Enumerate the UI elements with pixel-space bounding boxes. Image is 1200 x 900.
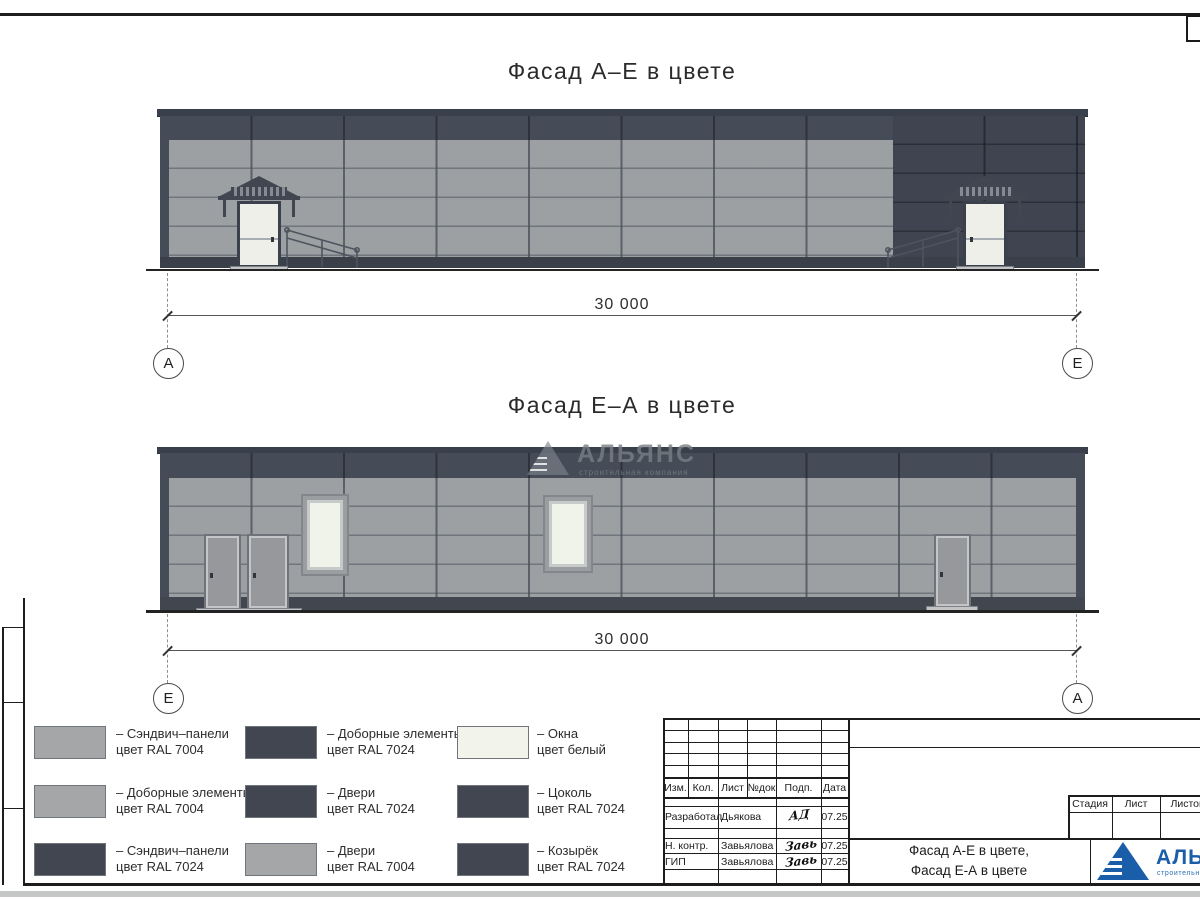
- canopy-bracket: [1018, 199, 1021, 217]
- watermark-tagline: строительная компания: [579, 468, 689, 477]
- titleblock-signature: АД: [789, 807, 810, 824]
- titleblock-header-list: Лист: [718, 782, 747, 794]
- legend-label: – Козырёкцвет RAL 7024: [537, 843, 625, 875]
- titleblock-line: [663, 828, 848, 829]
- facade2-window-2: [545, 497, 591, 571]
- titleblock-line: [1090, 838, 1091, 883]
- titleblock-date: 07.25: [821, 811, 848, 823]
- legend-label: – Доборные элементыцвет RAL 7024: [327, 726, 463, 758]
- legend-swatch: [245, 785, 317, 818]
- ramp-railing: [283, 220, 363, 270]
- door-handle: [970, 237, 973, 242]
- titleblock-doc-title-line2: Фасад Е-А в цвете: [848, 863, 1090, 878]
- legend-label: – Доборные элементыцвет RAL 7004: [116, 785, 252, 817]
- facade1-left-door: [237, 201, 281, 268]
- facade1-dimension-label: 30 000: [512, 296, 732, 314]
- dimension-line: [168, 315, 1077, 316]
- titleblock-line: [663, 806, 848, 807]
- facade1-right-door: [963, 201, 1007, 268]
- titleblock-line: [663, 853, 848, 854]
- titleblock-line: [848, 718, 850, 883]
- company-logo-tagline: строительная компания: [1157, 870, 1200, 877]
- titleblock-role: ГИП: [665, 856, 686, 868]
- facade2-door-1: [204, 534, 241, 610]
- canopy-slats: [231, 187, 287, 196]
- titleblock-line: [663, 869, 848, 870]
- legend-label: – Окнацвет белый: [537, 726, 606, 758]
- legend-label: – Дверицвет RAL 7024: [327, 785, 415, 817]
- canopy-slats: [957, 187, 1013, 196]
- titleblock-line: [848, 838, 1200, 840]
- titleblock-line: [663, 730, 848, 731]
- facade2-dimension-label: 30 000: [512, 631, 732, 649]
- watermark-company-name: АЛЬЯНС: [577, 440, 696, 469]
- titleblock-sheets-header: Листов: [1160, 798, 1200, 810]
- titleblock-date: 07.25: [821, 856, 848, 868]
- titleblock-header-izm: Изм.: [663, 782, 688, 794]
- frame-margin-divider: [2, 627, 24, 628]
- drawing-sheet: Фасад А–Е в цвете: [0, 0, 1200, 900]
- canopy-bracket: [223, 199, 226, 217]
- titleblock-line: [1068, 812, 1200, 813]
- facade2-title: Фасад Е–А в цвете: [422, 392, 822, 419]
- frame-top-line: [0, 13, 1200, 16]
- facade2-left-corner-trim: [160, 453, 169, 597]
- company-logo-icon: [1097, 842, 1149, 880]
- facade2-door-3: [934, 534, 971, 608]
- titleblock-line: [663, 797, 848, 799]
- titleblock-header-ndok: №док: [747, 782, 776, 794]
- titleblock-signature: Завь: [785, 852, 818, 870]
- canopy-bar: [218, 196, 300, 200]
- legend-swatch: [245, 843, 317, 876]
- titleblock-header-podp: Подп.: [776, 782, 821, 794]
- legend-label: – Сэндвич–панелицвет RAL 7004: [116, 726, 229, 758]
- legend-swatch: [457, 843, 529, 876]
- titleblock-header-data: Дата: [821, 782, 848, 794]
- titleblock-name: Дьякова: [721, 811, 761, 823]
- facade1-axis-right: Е: [1062, 348, 1093, 379]
- titleblock-line: [663, 742, 848, 743]
- canopy-bar: [944, 196, 1026, 200]
- titleblock-name: Завьялова: [721, 856, 773, 868]
- titleblock-date: 07.25: [821, 840, 848, 852]
- legend-label: – Дверицвет RAL 7004: [327, 843, 415, 875]
- legend-label: – Цокольцвет RAL 7024: [537, 785, 625, 817]
- facade1-title: Фасад А–Е в цвете: [422, 58, 822, 85]
- door-handle: [940, 572, 943, 577]
- legend-swatch: [34, 843, 106, 876]
- titleblock-stage-header: Стадия: [1068, 798, 1112, 810]
- titleblock-sheet-header: Лист: [1112, 798, 1160, 810]
- legend-label: – Сэндвич–панелицвет RAL 7024: [116, 843, 229, 875]
- ramp-railing: [882, 220, 962, 270]
- extension-line: [1076, 273, 1077, 348]
- facade1-ground-line: [146, 269, 1099, 272]
- titleblock-signature: Завь: [785, 836, 818, 854]
- titleblock-doc-title-line1: Фасад А-Е в цвете,: [848, 843, 1090, 858]
- titleblock-header-kol: Кол.: [688, 782, 718, 794]
- frame-corner-box: [1186, 15, 1200, 42]
- legend: – Сэндвич–панелицвет RAL 7004 – Доборные…: [0, 715, 660, 885]
- frame-margin-divider: [2, 702, 24, 703]
- facade2-ground-line: [146, 610, 1099, 613]
- titleblock-line: [848, 747, 1200, 748]
- legend-swatch: [457, 726, 529, 759]
- facade1-axis-left: А: [153, 348, 184, 379]
- watermark-logo-icon: [527, 441, 569, 475]
- door-handle: [210, 573, 213, 578]
- legend-swatch: [34, 726, 106, 759]
- titleblock-line: [663, 753, 848, 754]
- facade1-drawing: [160, 109, 1085, 271]
- legend-swatch: [457, 785, 529, 818]
- facade2-window-1: [303, 496, 347, 574]
- door-handle: [253, 573, 256, 578]
- titleblock-line: [663, 777, 848, 779]
- titleblock-name: Завьялова: [721, 840, 773, 852]
- door-handle: [271, 237, 274, 242]
- titleblock-line: [1068, 795, 1200, 797]
- facade2-axis-right: А: [1062, 683, 1093, 714]
- titleblock-role: Н. контр.: [665, 840, 708, 852]
- legend-swatch: [34, 785, 106, 818]
- company-watermark: АЛЬЯНС строительная компания: [527, 437, 717, 483]
- titleblock-line: [663, 718, 1200, 720]
- canopy-bracket: [949, 199, 952, 217]
- dimension-line: [168, 650, 1077, 651]
- canopy-bracket: [292, 199, 295, 217]
- facade2-right-corner-trim: [1076, 453, 1085, 597]
- legend-swatch: [245, 726, 317, 759]
- titleblock-line: [663, 838, 848, 839]
- page-edge-shadow: [0, 891, 1200, 897]
- facade1-left-corner-trim: [160, 116, 169, 257]
- facade2-door-2: [247, 534, 289, 610]
- extension-line: [167, 273, 168, 348]
- titleblock-line: [663, 765, 848, 766]
- company-logo-name: АЛЬЯНС: [1156, 846, 1200, 870]
- facade2-axis-left: Е: [153, 683, 184, 714]
- titleblock-role: Разработал: [665, 811, 722, 823]
